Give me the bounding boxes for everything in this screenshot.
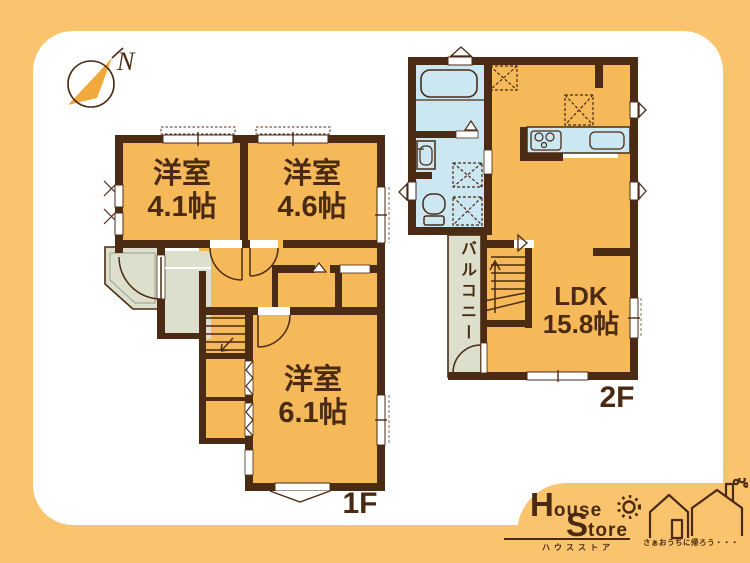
compass-icon: N bbox=[55, 36, 155, 116]
room-size: 4.6帖 bbox=[277, 191, 346, 224]
bathtub-icon bbox=[416, 70, 484, 100]
room-name: 洋室 bbox=[278, 364, 347, 397]
kitchen-counter bbox=[527, 127, 630, 153]
logo-h: H bbox=[530, 486, 554, 523]
room-label-ldk: LDK 15.8帖 bbox=[543, 282, 620, 338]
room-size: 4.1帖 bbox=[147, 191, 216, 224]
compass-north-label: N bbox=[116, 47, 136, 76]
house-store-logo: House Store ハウスストア さぁおうちに帰ろう・・・ bbox=[490, 478, 748, 563]
compass-needle bbox=[68, 58, 112, 105]
floor-plan-page: N bbox=[0, 0, 750, 563]
floor-label-2f: 2F bbox=[599, 381, 634, 415]
sun-icon bbox=[619, 497, 640, 518]
room-name: 洋室 bbox=[147, 158, 216, 191]
room-name: LDK bbox=[543, 282, 620, 310]
floor-plan-1f bbox=[95, 120, 395, 532]
balcony-label: バルコニー bbox=[454, 240, 478, 380]
room-label-1f-west1: 洋室 4.1帖 bbox=[147, 158, 216, 224]
logo-art bbox=[608, 478, 748, 563]
room-size: 15.8帖 bbox=[543, 310, 620, 338]
room-label-1f-west2: 洋室 4.6帖 bbox=[277, 158, 346, 224]
1f-entry-porch bbox=[105, 247, 160, 309]
room-size: 6.1帖 bbox=[278, 397, 347, 430]
room-label-1f-west3: 洋室 6.1帖 bbox=[278, 364, 347, 430]
houses-icon bbox=[650, 478, 748, 538]
floor-label-1f: 1F bbox=[342, 487, 377, 521]
room-name: 洋室 bbox=[277, 158, 346, 191]
logo-katakana: ハウスストア bbox=[542, 542, 614, 553]
washbasin-icon bbox=[417, 141, 435, 169]
